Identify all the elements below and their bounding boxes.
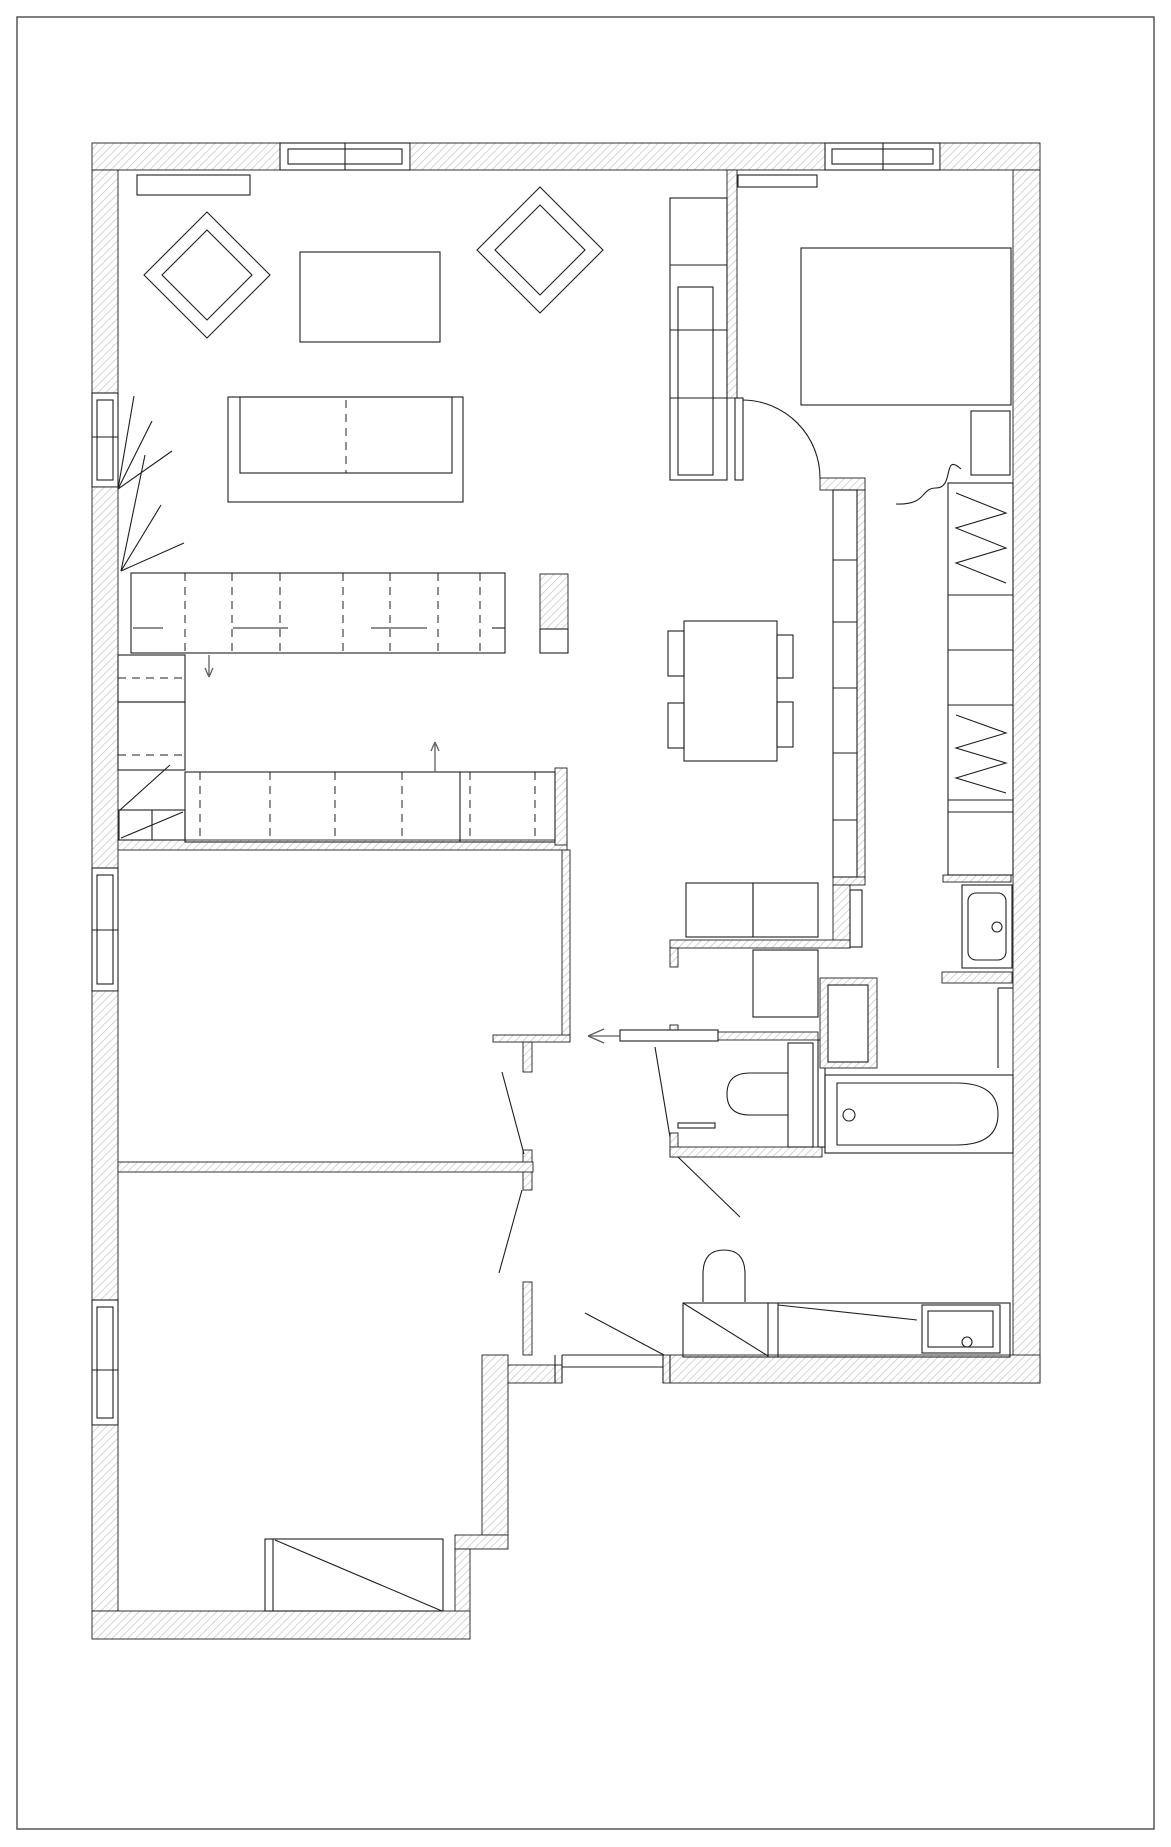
wardrobe-hanging-2 bbox=[956, 715, 1006, 793]
wall-hall-a bbox=[523, 1042, 532, 1072]
pillar-face bbox=[540, 629, 568, 653]
door-leaf-bedroom2 bbox=[499, 1190, 522, 1273]
wall-stub-wardrobe bbox=[943, 875, 1011, 882]
vanity-diagonal-1 bbox=[683, 1303, 768, 1356]
wall-bedroom-divider bbox=[727, 170, 737, 398]
chair-left-2 bbox=[668, 703, 684, 748]
wall-wardrobe-bottom bbox=[493, 1035, 570, 1042]
swing-fan-2-a bbox=[121, 455, 145, 571]
window-left-1-gap bbox=[92, 393, 118, 487]
bedroom-door-arc bbox=[743, 400, 820, 478]
armchair-1-outer bbox=[144, 212, 270, 338]
sink-outer bbox=[922, 1305, 1000, 1353]
basin-upper-drain bbox=[992, 922, 1002, 932]
chair-right-2 bbox=[777, 702, 793, 747]
wall-left-2 bbox=[92, 487, 118, 868]
boiler-unit bbox=[753, 950, 818, 1017]
washer bbox=[686, 883, 753, 937]
page-border bbox=[17, 17, 1154, 1829]
wall-bottom-left bbox=[92, 1611, 470, 1639]
wall-left-3 bbox=[92, 991, 118, 1300]
bedroom-door-leaf bbox=[735, 398, 743, 480]
window-left-3-gap bbox=[92, 1300, 118, 1425]
bathtub-inner bbox=[837, 1083, 998, 1145]
coffee-table bbox=[300, 252, 440, 342]
wall-top-mid bbox=[410, 143, 825, 170]
wall-right bbox=[1013, 170, 1040, 1383]
wall-wardrobe-right bbox=[562, 850, 570, 1040]
wall-stub-basin bbox=[942, 972, 1012, 983]
hall-arrow-head-b bbox=[588, 1036, 604, 1043]
bathtub-drain bbox=[843, 1109, 855, 1121]
wardrobe-hanging-1 bbox=[956, 493, 1006, 583]
chair-left-1 bbox=[668, 631, 684, 676]
power-cord bbox=[896, 464, 961, 504]
wardrobe-strip bbox=[948, 483, 1013, 875]
wall-elbow-mid bbox=[833, 877, 865, 885]
wall-top-left bbox=[92, 143, 280, 170]
bath-door-leaf bbox=[850, 890, 862, 947]
armchair-2-outer bbox=[477, 187, 603, 313]
wall-service-a bbox=[670, 948, 678, 967]
kitchen-lower-counter bbox=[185, 772, 555, 842]
wall-bedroom1-bottom bbox=[118, 1162, 533, 1172]
nightstand bbox=[971, 411, 1010, 475]
door-leaf-bathroom2 bbox=[678, 1157, 740, 1217]
bedroom2-unit-diagonal bbox=[275, 1540, 442, 1611]
floor-plan-page bbox=[0, 0, 1171, 1847]
door-leaf-bedroom1 bbox=[502, 1072, 524, 1154]
swing-fan-2-c bbox=[121, 543, 184, 571]
basin-upper-inner bbox=[968, 893, 1006, 960]
kitchen-corner-diagonal bbox=[120, 765, 170, 810]
dining-table bbox=[684, 621, 777, 761]
swing-fan-1-a bbox=[118, 396, 134, 489]
wall-step-lower bbox=[455, 1549, 470, 1620]
basin-upper-outer bbox=[962, 885, 1012, 968]
wall-left-4 bbox=[92, 1425, 118, 1611]
hall-arrow-head-a bbox=[588, 1029, 604, 1036]
wall-step-jog bbox=[455, 1535, 508, 1549]
chair-right-1 bbox=[777, 635, 793, 678]
toilet-2 bbox=[703, 1250, 745, 1302]
vanity-diagonal-2 bbox=[778, 1305, 917, 1320]
duct-shaft-inner bbox=[828, 985, 868, 1062]
wall-bottom-right bbox=[663, 1355, 1040, 1383]
swing-fan-2-b bbox=[121, 505, 161, 571]
bedroom-shelf bbox=[738, 175, 817, 187]
dryer bbox=[753, 883, 818, 937]
shelving-inner bbox=[678, 287, 713, 475]
wall-dining-side bbox=[857, 490, 865, 877]
floor-plan-svg bbox=[0, 0, 1171, 1847]
wc-shelf bbox=[678, 1123, 715, 1128]
cabinet-column bbox=[833, 490, 857, 877]
sink-drain bbox=[962, 1337, 972, 1347]
wall-hall-c bbox=[523, 1282, 532, 1355]
wall-step-upper bbox=[482, 1355, 508, 1535]
entrance-door-leaf bbox=[585, 1313, 664, 1355]
wall-elbow-top bbox=[820, 478, 865, 490]
door-leaf-wc bbox=[655, 1047, 670, 1137]
wall-left-1 bbox=[92, 170, 118, 393]
bed bbox=[801, 248, 1011, 405]
wall-counter-stub bbox=[555, 768, 567, 845]
wall-pillar bbox=[540, 574, 568, 629]
wc-cistern bbox=[788, 1043, 813, 1147]
kitchen-tall-unit-2 bbox=[118, 702, 185, 770]
wall-wc-bottom bbox=[670, 1147, 822, 1157]
kitchen-upper-cabinets bbox=[131, 573, 505, 653]
wall-laundry-top bbox=[670, 940, 850, 948]
wall-jog-mid bbox=[833, 885, 850, 948]
wc-toilet bbox=[727, 1073, 788, 1115]
sink-inner bbox=[928, 1311, 993, 1347]
hall-arrow-shaft bbox=[620, 1030, 718, 1041]
wall-top-right bbox=[940, 143, 1040, 170]
living-shelf bbox=[137, 175, 250, 195]
bathtub-outer bbox=[825, 1075, 1013, 1153]
swing-fan-1-b bbox=[118, 421, 152, 489]
